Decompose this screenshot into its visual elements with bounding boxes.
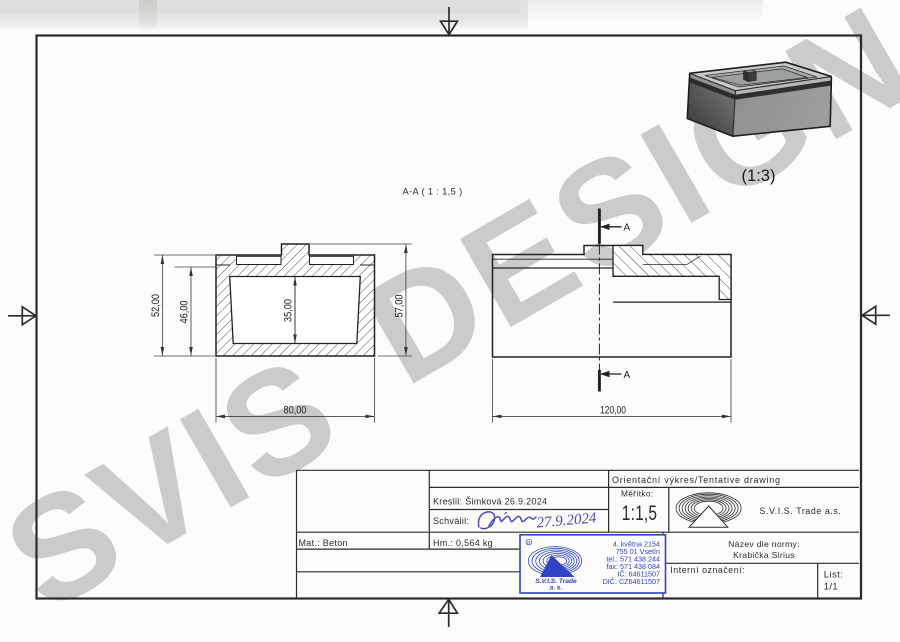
svg-text:List:: List:: [824, 569, 844, 580]
svg-text:Mat.: Beton: Mat.: Beton: [299, 538, 348, 548]
svg-text:Orientační výkres/Tentative dr: Orientační výkres/Tentative drawing: [612, 475, 781, 485]
svg-text:46,00: 46,00: [179, 301, 191, 324]
svg-text:A-A ( 1 : 1,5 ): A-A ( 1 : 1,5 ): [403, 187, 463, 197]
svg-text:27.9.2024: 27.9.2024: [536, 510, 598, 531]
svg-text:DIČ: CZ64611507: DIČ: CZ64611507: [603, 577, 660, 586]
svg-text:S.V.I.S. Trade a.s.: S.V.I.S. Trade a.s.: [760, 506, 842, 516]
svg-text:A: A: [624, 223, 631, 234]
svg-text:(1:3): (1:3): [742, 167, 776, 185]
svg-text:57,00: 57,00: [394, 295, 406, 318]
svg-text:a. s.: a. s.: [550, 585, 563, 592]
svg-text:35,00: 35,00: [283, 299, 295, 322]
svg-text:Měřítko:: Měřítko:: [621, 489, 653, 499]
svg-text:52,00: 52,00: [150, 294, 162, 317]
svg-text:Hm.: 0,564 kg: Hm.: 0,564 kg: [433, 538, 493, 548]
svg-text:1:1,5: 1:1,5: [622, 502, 658, 525]
svg-text:R: R: [527, 540, 530, 545]
svg-text:Název dle normy:: Název dle normy:: [728, 539, 800, 549]
svg-text:Kreslil: Šimková 26.9.2024: Kreslil: Šimková 26.9.2024: [433, 497, 547, 507]
svg-text:120,00: 120,00: [600, 405, 626, 417]
svg-text:Interní označení:: Interní označení:: [670, 565, 745, 575]
svg-text:A: A: [624, 370, 631, 381]
svg-text:Krabička Sirius: Krabička Sirius: [733, 550, 795, 560]
svg-text:Schválil:: Schválil:: [433, 516, 469, 526]
svg-text:80,00: 80,00: [284, 405, 307, 417]
svg-text:1/1: 1/1: [824, 581, 838, 592]
